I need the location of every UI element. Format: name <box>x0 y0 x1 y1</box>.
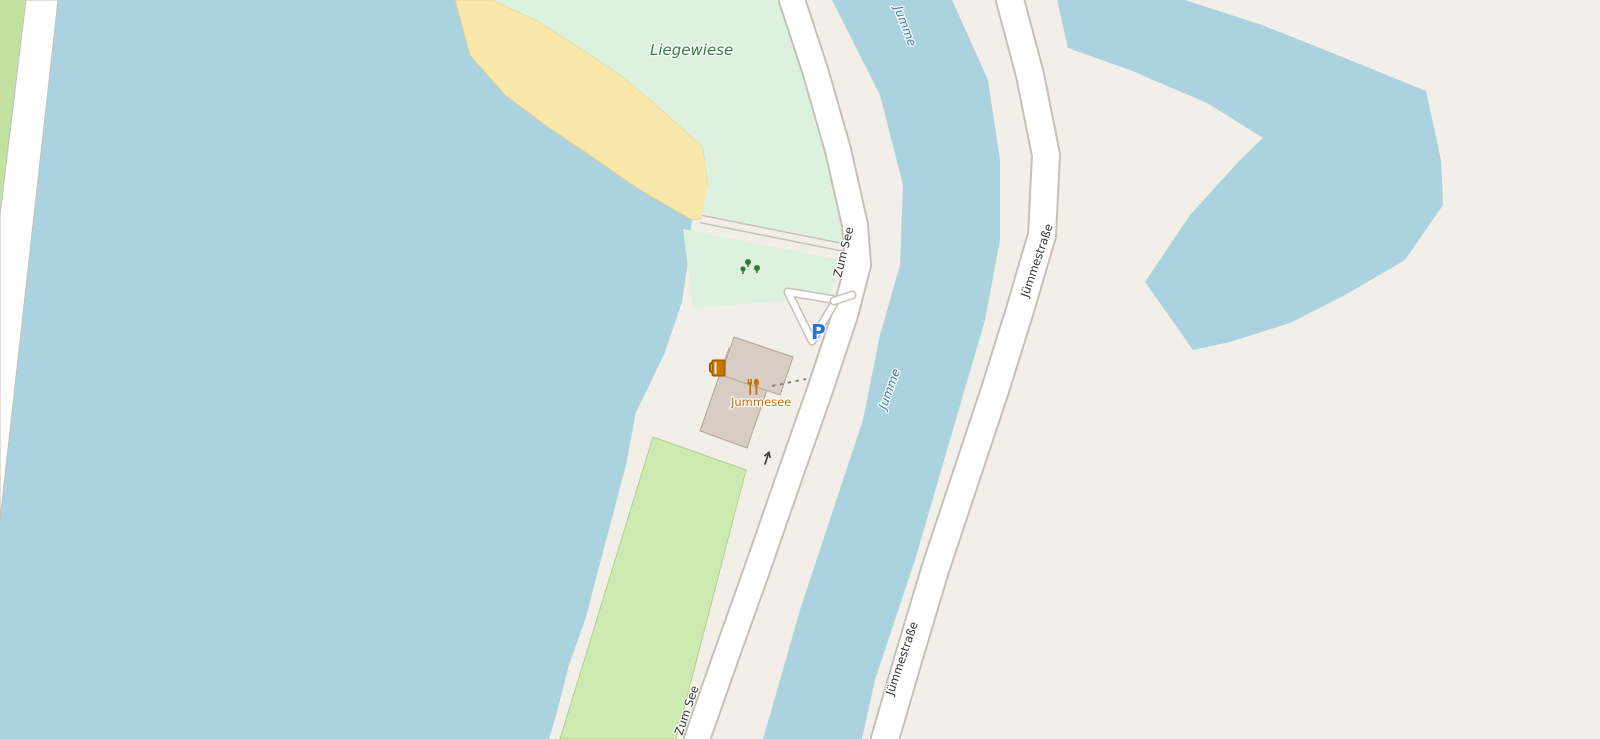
meadow-label: Liegewiese <box>650 41 733 59</box>
parking-icon: P <box>811 320 826 344</box>
biergarten-icon <box>710 360 725 376</box>
map-viewport: Liegewiese Jumme Jumme Zum See Zum See J… <box>0 0 1600 739</box>
poi-label-jummesee: Jummesee <box>730 395 791 409</box>
map-canvas[interactable]: Liegewiese Jumme Jumme Zum See Zum See J… <box>0 0 1600 739</box>
